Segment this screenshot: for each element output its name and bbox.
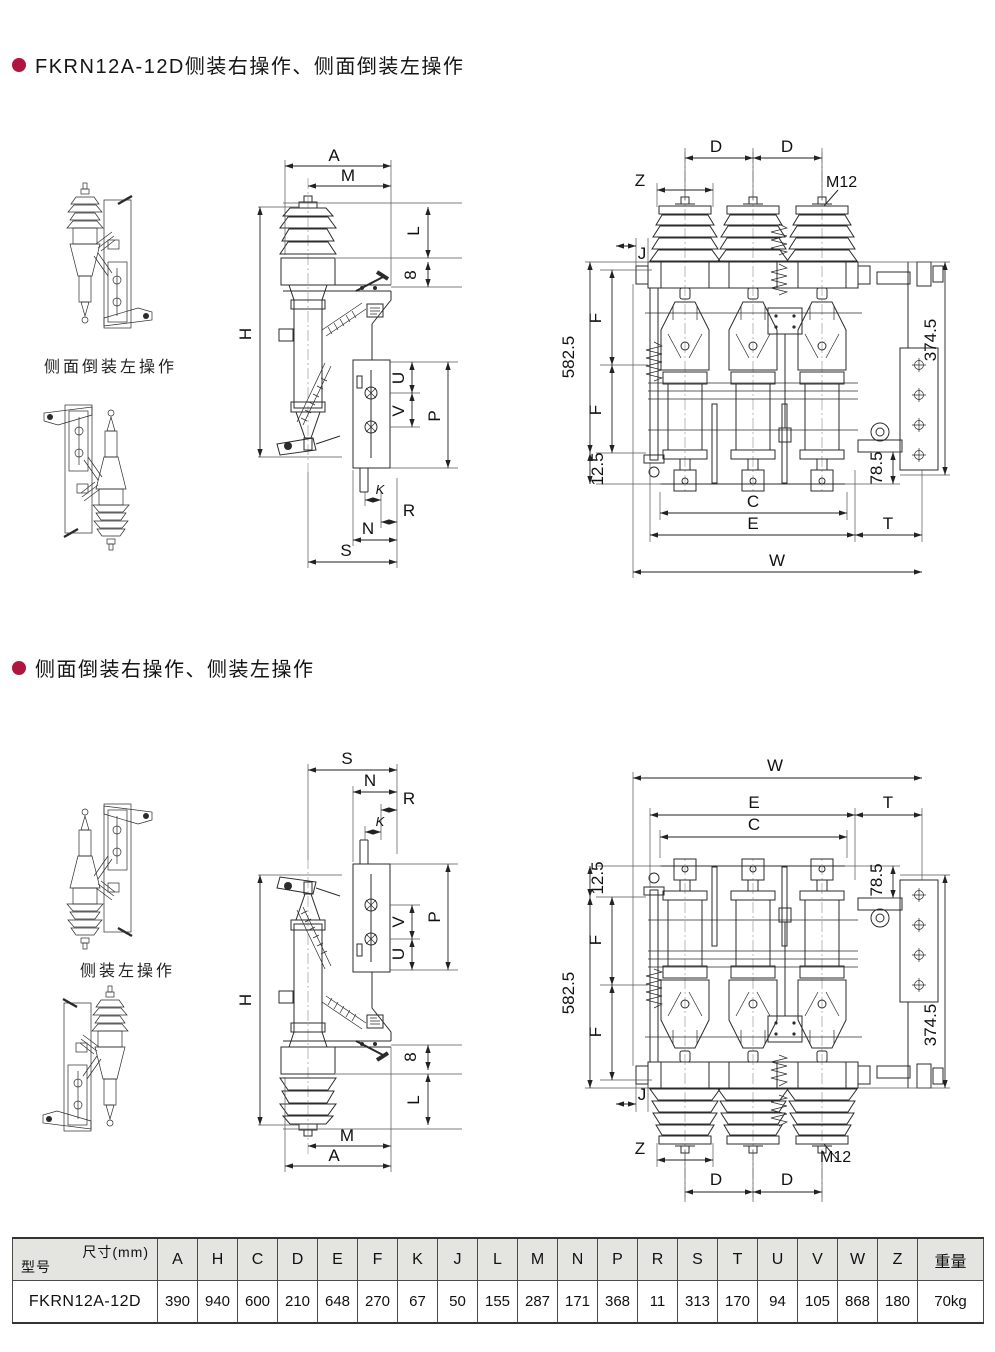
dim-label-125: 12.5 [588,452,607,485]
dim-label-j: J [638,1085,647,1104]
side-view-section2 [258,764,462,1172]
col-header-w: W [838,1238,878,1281]
dim-label-d2: D [781,137,793,156]
dim-label-w: W [769,551,785,570]
col-header-m: M [518,1238,558,1281]
dim-label-m: M [340,1126,354,1145]
col-header-c: C [238,1238,278,1281]
dim-label-m12: M12 [820,1149,851,1166]
value-u: 94 [758,1281,798,1324]
table-corner-cell: 尺寸(mm) 型号 [13,1238,158,1281]
side-view-section2-labels: S N R K P V U H 8 L M A [236,749,444,1165]
value-j: 50 [438,1281,478,1324]
col-header-j: J [438,1238,478,1281]
dim-label-8: 8 [401,1052,420,1061]
corner-label-size: 尺寸(mm) [82,1242,149,1262]
catalog-page: FKRN12A-12D侧装右操作、侧面倒装左操作 侧面倒装右操作、侧装左操作 侧… [0,0,995,1352]
dim-label-a: A [328,146,340,165]
dim-label-v: V [389,405,408,417]
mini-view-top-inverted [44,405,129,550]
dim-label-t: T [883,793,893,812]
col-header-z: Z [878,1238,918,1281]
col-header-d: D [278,1238,318,1281]
value-r: 11 [638,1281,678,1324]
value-a: 390 [158,1281,198,1324]
col-header-p: P [598,1238,638,1281]
dim-label-p: P [425,911,444,922]
dim-label-v: V [389,916,408,928]
table-header-row: 尺寸(mm) 型号 A H C D E F K J L M N P R S T … [13,1238,984,1281]
dim-label-f2: F [586,405,605,415]
value-e: 648 [318,1281,358,1324]
dim-label-t: T [883,514,893,533]
table-data-row: FKRN12A-12D 390 940 600 210 648 270 67 5… [13,1281,984,1324]
dim-label-3745: 374.5 [921,1004,940,1047]
model-cell: FKRN12A-12D [13,1281,158,1324]
value-d: 210 [278,1281,318,1324]
dim-label-l: L [404,1095,423,1104]
dimension-table: 尺寸(mm) 型号 A H C D E F K J L M N P R S T … [12,1237,984,1324]
col-header-k: K [398,1238,438,1281]
dim-label-h: H [236,328,255,340]
front-view-section1 [585,148,950,578]
mini-view-bottom-upright [43,986,128,1131]
mini-view-bottom-inverted [67,804,152,949]
value-c: 600 [238,1281,278,1324]
value-n: 171 [558,1281,598,1324]
dim-label-e: E [748,793,759,812]
dim-label-125: 12.5 [588,861,607,894]
col-header-e: E [318,1238,358,1281]
col-header-s: S [678,1238,718,1281]
dim-label-u: U [389,948,408,960]
dim-label-d1: D [710,1170,722,1189]
dim-label-r: R [403,789,415,808]
dim-label-m: M [341,166,355,185]
dim-label-d1: D [710,137,722,156]
value-weight: 70kg [918,1281,984,1324]
dim-label-f1: F [586,935,605,945]
dim-label-a: A [328,1146,340,1165]
dim-label-w: W [767,756,783,775]
dim-label-n: N [364,771,376,790]
dim-label-z: Z [635,1139,645,1158]
dim-label-e: E [747,514,758,533]
side-view-section1 [258,160,462,568]
dim-label-582: 582.5 [559,972,578,1015]
col-header-n: N [558,1238,598,1281]
col-header-r: R [638,1238,678,1281]
dim-label-k: K [376,814,386,829]
dim-label-f1: F [586,313,605,323]
value-w: 868 [838,1281,878,1324]
technical-drawings: A M L 8 H U V P K R N S D D Z M12 J F F … [0,0,995,1352]
dim-label-h: H [236,994,255,1006]
dim-label-d2: D [781,1170,793,1189]
value-l: 155 [478,1281,518,1324]
dim-label-j: J [638,244,647,263]
col-header-f: F [358,1238,398,1281]
value-s: 313 [678,1281,718,1324]
dim-label-s: S [341,749,352,768]
dim-label-582: 582.5 [559,336,578,379]
dim-label-c: C [747,492,759,511]
dim-label-8: 8 [401,270,420,279]
col-header-t: T [718,1238,758,1281]
value-k: 67 [398,1281,438,1324]
value-h: 940 [198,1281,238,1324]
value-z: 180 [878,1281,918,1324]
front-view-section2 [585,772,950,1202]
dim-label-785: 78.5 [867,863,886,896]
dim-label-p: P [425,410,444,421]
value-p: 368 [598,1281,638,1324]
col-header-u: U [758,1238,798,1281]
value-f: 270 [358,1281,398,1324]
value-v: 105 [798,1281,838,1324]
dim-label-r: R [403,501,415,520]
dim-label-n: N [362,519,374,538]
dim-label-l: L [404,226,423,235]
dim-label-z: Z [635,171,645,190]
dim-label-f2: F [586,1027,605,1037]
dim-label-3745: 374.5 [921,319,940,362]
dim-label-c: C [748,815,760,834]
dim-label-u: U [389,372,408,384]
col-header-h: H [198,1238,238,1281]
col-header-weight: 重量 [918,1238,984,1281]
dim-label-m12: M12 [826,174,857,191]
col-header-a: A [158,1238,198,1281]
mini-view-top-upright [67,183,152,328]
value-m: 287 [518,1281,558,1324]
corner-label-model: 型号 [21,1257,51,1277]
value-t: 170 [718,1281,758,1324]
dim-label-k: K [376,482,386,497]
col-header-v: V [798,1238,838,1281]
dim-label-785: 78.5 [867,451,886,484]
col-header-l: L [478,1238,518,1281]
side-view-section1-labels: A M L 8 H U V P K R N S [236,146,444,560]
dim-label-s: S [340,541,351,560]
